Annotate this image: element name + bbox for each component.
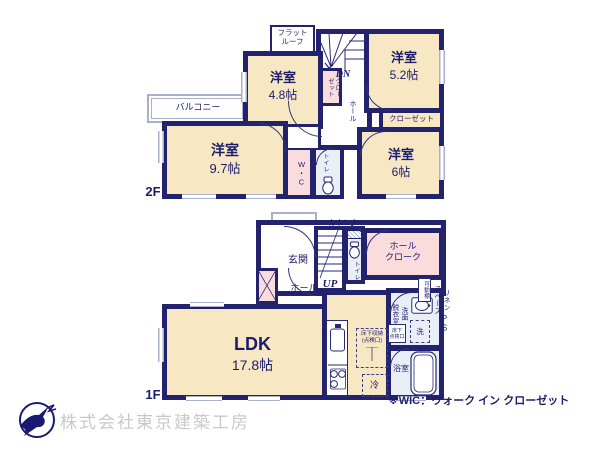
hall-2f-label: ホール <box>344 90 356 132</box>
window <box>158 328 164 362</box>
underfloor-hatch-label: 床下 点検口 <box>389 328 405 340</box>
room-2f-52-size: 5.2帖 <box>369 68 439 82</box>
room-2f-6-size: 6帖 <box>365 165 437 179</box>
window <box>190 302 224 307</box>
floor2-label: 2F <box>140 184 166 200</box>
ldk-size: 17.8帖 <box>200 357 305 374</box>
stairs-dn-label: DN <box>330 69 356 81</box>
closet-2f-52-label: クローゼット <box>381 114 442 123</box>
room-2f-48-size: 4.8帖 <box>248 88 318 102</box>
window <box>241 72 247 102</box>
window <box>246 194 276 199</box>
window <box>186 396 222 401</box>
underfloor-storage-label: 床下収納 (点検口) <box>358 331 386 344</box>
movable-shelf-box: 可動棚 <box>418 278 431 302</box>
floor-plan: バルコニー フラット ルーフ クロー ゼット DN ホール 洋室 4.8帖 洋室… <box>0 0 600 450</box>
window <box>248 396 280 401</box>
underfloor-hatch-box: 床下 点検口 <box>388 324 406 343</box>
room-2f-97-size: 9.7帖 <box>185 161 265 177</box>
toilet-1f-icon <box>348 241 361 259</box>
window <box>439 146 445 180</box>
counter-leader-line <box>350 224 364 234</box>
washer-box: 洗 <box>410 320 430 343</box>
toilet-1f-label: トイレ <box>349 259 359 283</box>
flat-roof-label: フラット ルーフ <box>271 28 314 46</box>
stairs-2f-icon <box>321 33 367 71</box>
movable-shelf-label: 可動棚 <box>420 280 429 300</box>
entrance-label: 玄関 <box>278 255 318 267</box>
window <box>182 194 216 199</box>
toilet-2f-label: トイレ <box>318 150 328 176</box>
ldk-name: LDK <box>200 334 305 356</box>
window <box>439 50 445 84</box>
wic-note: ※WIC：ウォーク イン クローゼット <box>388 392 593 408</box>
underfloor-storage-box: 床下収納 (点検口) <box>356 328 388 368</box>
washer-label: 洗 <box>411 327 429 336</box>
company-logo-icon <box>14 396 62 444</box>
hall-1f-label: ホール <box>284 283 324 294</box>
fridge-label: 冷 <box>363 380 386 391</box>
shoe-cabinet-cross-icon <box>258 270 276 301</box>
ps-label: PS <box>437 312 449 334</box>
stairs-1f-icon <box>318 230 342 278</box>
room-2f-6-name: 洋室 <box>365 147 437 163</box>
wic-2f-label: W・C <box>292 152 306 194</box>
fridge-box: 冷 <box>362 374 388 397</box>
window <box>386 194 416 199</box>
window <box>158 131 164 163</box>
floor1-label: 1F <box>140 387 166 403</box>
toilet-2f-icon <box>321 176 335 195</box>
room-2f-97-name: 洋室 <box>185 142 265 159</box>
room-2f-48-name: 洋室 <box>248 70 318 86</box>
balcony-label: バルコニー <box>160 102 236 113</box>
hall-cloak-label: ホール クローク <box>372 241 434 263</box>
room-2f-52-name: 洋室 <box>369 50 439 66</box>
bathtub-icon <box>410 351 437 396</box>
kitchen-unit <box>326 320 348 396</box>
company-name: 株式会社東京建築工房 <box>60 408 250 433</box>
